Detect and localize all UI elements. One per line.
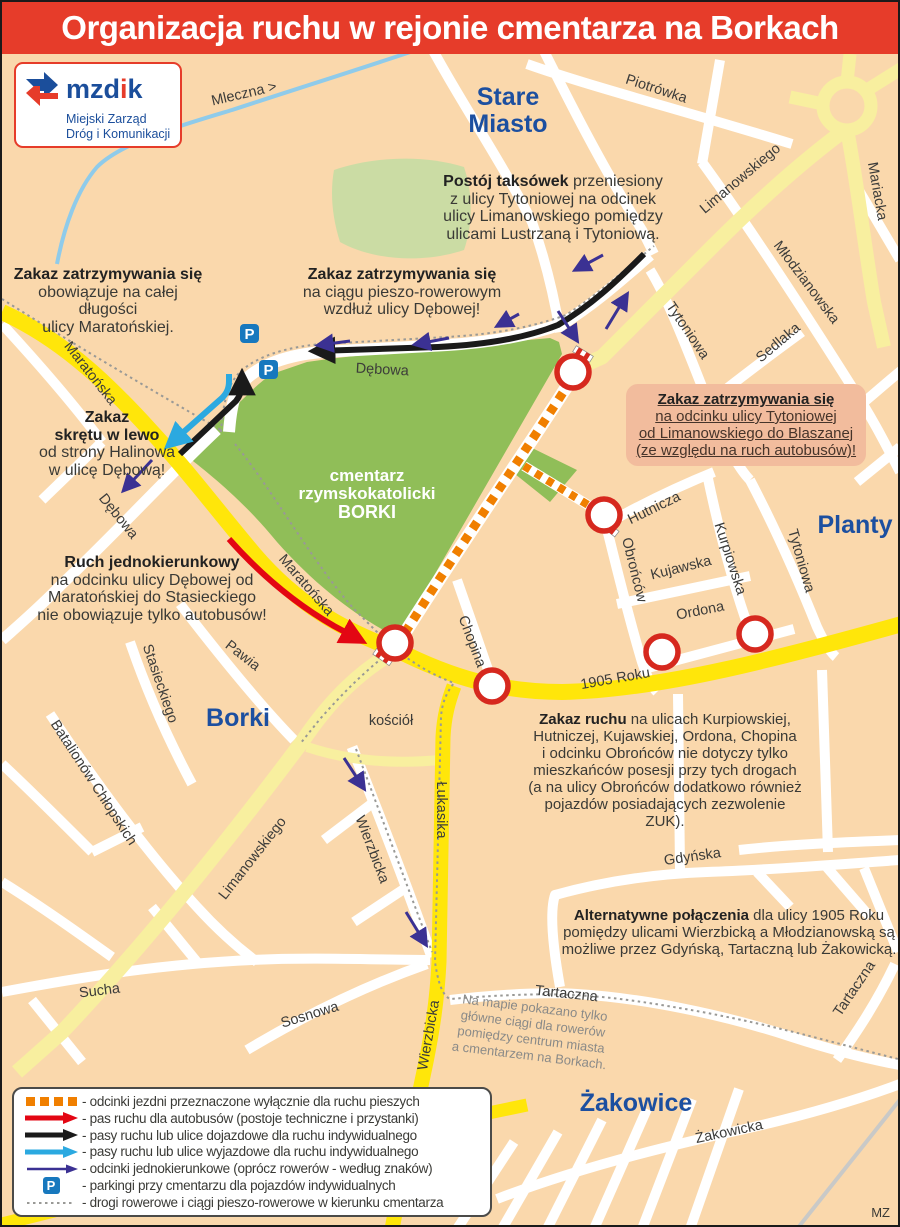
logo-wordmark: mzdik [66,76,143,103]
dotted-line-icon [20,1198,82,1208]
district-planty: Planty [817,511,892,539]
svg-text:cmentarz: cmentarz [330,466,405,485]
black-arrow-icon [20,1128,82,1142]
svg-text:P: P [263,362,273,379]
legend: - odcinki jezdni przeznaczone wyłącznie … [12,1087,492,1217]
orange-dashes-icon [20,1095,82,1108]
legend-item-bike-routes: - drogi rowerowe i ciągi pieszo-rowerowe… [20,1194,484,1211]
legend-item-outbound: - pasy ruchu lub ulice wyjazdowe dla ruc… [20,1144,484,1161]
annotation-maratonska-ban: Zakaz zatrzymywania się obowiązuje na ca… [7,266,209,336]
annotation-taxi: Postój taksówek przeniesiony z ulicy Tyt… [437,173,669,243]
annotation-debowa-ban: Zakaz zatrzymywania się na ciągu pieszo-… [300,266,504,319]
svg-text:BORKI: BORKI [338,502,396,522]
blue-arrow-icon [20,1145,82,1159]
annotation-one-way: Ruch jednokierunkowy na odcinku ulicy Dę… [35,554,269,624]
page-title: Organizacja ruchu w rejonie cmentarza na… [61,9,838,47]
svg-text:P: P [244,326,254,343]
legend-item-parking: P - parkingi przy cmentarzu dla pojazdów… [20,1177,484,1194]
district-stare-miasto: Miasto [468,110,547,138]
street-label-debowa: Dębowa [355,361,410,380]
header-bar: Organizacja ruchu w rejonie cmentarza na… [2,2,898,54]
legend-item-one-way: - odcinki jednokierunkowe (oprócz roweró… [20,1160,484,1177]
district-stare-miasto: Stare [477,83,540,111]
annotation-tytoniowa-box: Zakaz zatrzymywania się na odcinku ulicy… [626,384,866,466]
author-initials: MZ [871,1205,890,1220]
navy-arrow-icon [20,1162,82,1176]
red-arrow-icon [20,1111,82,1125]
church-label: kościół [369,713,414,729]
district-zakowice: Żakowice [580,1089,693,1117]
traffic-map-infographic: P P Mleczna > Piotrówka Limanowskiego Ma… [0,0,900,1227]
mzdik-logo-icon [24,69,60,109]
district-borki: Borki [206,704,270,732]
mzdik-logo: mzdik Miejski Zarząd Dróg i Komunikacji [14,62,182,148]
annotation-left-turn-ban: Zakaz skrętu w lewo od strony Halinowa w… [17,409,197,479]
logo-subtitle: Miejski Zarząd Dróg i Komunikacji [66,112,172,141]
legend-item-bus-lane: - pas ruchu dla autobusów (postoje techn… [20,1110,484,1127]
legend-item-inbound: - pasy ruchu lub ulice dojazdowe dla ruc… [20,1127,484,1144]
street-label-lukasika: Łukasika [433,781,449,839]
legend-item-pedestrian-sections: - odcinki jezdni przeznaczone wyłącznie … [20,1093,484,1110]
annotation-zakaz-ruchu: Zakaz ruchu na ulicach Kurpiowskiej, Hut… [523,711,807,830]
parking-icon: P [20,1177,82,1194]
annotation-alternatywne: Alternatywne połączenia dla ulicy 1905 R… [560,907,898,958]
svg-text:rzymskokatolicki: rzymskokatolicki [298,484,435,503]
